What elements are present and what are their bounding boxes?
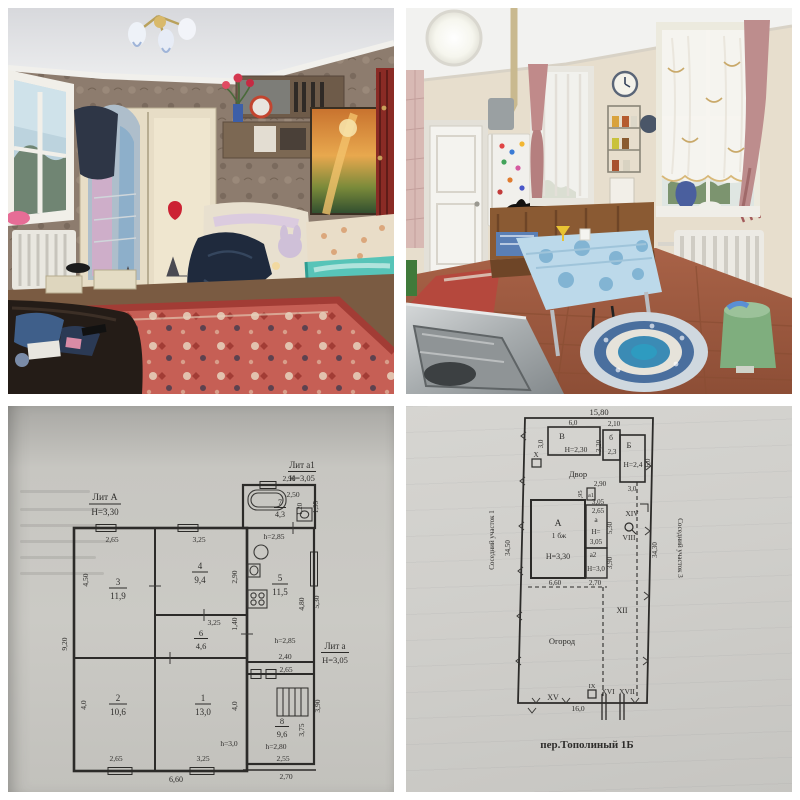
yard-label: Двор — [569, 469, 587, 479]
dim-b-depth: 6,0 — [644, 458, 652, 467]
dim-room6-right: 1,40 — [230, 617, 239, 630]
room-a-h1: Н= — [591, 528, 600, 536]
roman-xvii: XVII — [619, 687, 635, 696]
building-b-height: Н=2,4 — [623, 460, 642, 469]
nature-panel — [311, 108, 381, 214]
room5-number: 5 — [278, 573, 283, 583]
room-a2-label: а2 — [590, 551, 597, 559]
roman-ix: IX — [589, 683, 596, 690]
dim-left-total: 9,20 — [60, 637, 69, 650]
dim-room1-right: 4,0 — [230, 701, 239, 711]
room2-area: 10,6 — [110, 707, 126, 717]
dim-room8-bottom2: 2,70 — [279, 772, 292, 781]
blue-vase — [675, 181, 696, 206]
dim-room8-bottom1: 2,55 — [276, 754, 289, 763]
dim-room2-bottom: 2,65 — [109, 754, 122, 763]
roman-xvi: XVI — [601, 687, 615, 696]
dim-b-width: 3,0 — [628, 485, 637, 493]
bedroom-photo[interactable] — [8, 8, 394, 394]
dim-bottom-total: 6,60 — [169, 775, 183, 784]
calendar — [610, 178, 634, 206]
green-bottle — [406, 260, 417, 296]
room-a2-height: Н=3,0 — [587, 565, 605, 573]
lit-a-small-height: Н=3,05 — [322, 655, 348, 665]
building-b-label: Б — [627, 440, 632, 450]
wall-fan — [640, 115, 658, 133]
room2-number: 2 — [116, 693, 121, 703]
dim-room1-bottom: 3,25 — [196, 754, 209, 763]
site-plan[interactable]: 15,80 6,0 В Н=2,30 3,0 2,10 3,20 б 2,3 Б… — [406, 406, 792, 792]
stairs — [277, 688, 308, 716]
room6-area: 4,6 — [196, 641, 207, 651]
main-building-height: Н=3,30 — [546, 552, 570, 561]
dim-3-05a: 3,05 — [592, 498, 605, 506]
garden-label: Огород — [549, 636, 576, 646]
dim-bath-inner: 2,50 — [286, 490, 299, 499]
building-b2-label: б — [609, 433, 613, 442]
neighbor-parcel-1-label: Соседний участок 1 — [488, 510, 496, 570]
room4-area: 9,4 — [194, 575, 206, 585]
room7-number: 7 — [278, 498, 282, 507]
room1-number: 1 — [201, 693, 206, 703]
main-building-label: А — [555, 519, 562, 529]
room3-number: 3 — [116, 577, 121, 587]
trash-bin — [720, 302, 776, 373]
window — [8, 70, 74, 226]
main-building-note: 1 бж — [552, 531, 567, 540]
room8-area: 9,6 — [277, 729, 288, 739]
roman-xii: XII — [616, 606, 627, 615]
dim-left-length: 34,50 — [504, 540, 512, 556]
room3-area: 11,9 — [110, 591, 126, 601]
room1-area: 13,0 — [195, 707, 211, 717]
lit-a1-label: Лит а1 — [289, 460, 315, 470]
dim-bath-v1: 1,20 — [296, 502, 304, 515]
dim-2-65: 2,65 — [592, 507, 605, 515]
dim-room4-top: 3,25 — [192, 535, 205, 544]
red-curtain — [376, 68, 394, 226]
site-dashed-lines — [528, 482, 637, 699]
room5-area: 11,5 — [272, 587, 288, 597]
dim-pass-top: 2,40 — [278, 652, 291, 661]
dim-3-90: 3,90 — [606, 556, 614, 569]
ceiling-lamp — [427, 11, 481, 65]
dim-room8-right1: 3,90 — [313, 699, 322, 712]
meter-box — [488, 98, 514, 130]
dim-room3-left: 4,50 — [81, 573, 90, 586]
dim-room5-right2: 5,30 — [312, 595, 321, 608]
dim-pass-bottom: 2,65 — [279, 665, 292, 674]
room6-number: 6 — [199, 628, 203, 638]
lit-a-small-label: Лит а — [324, 641, 345, 651]
dim-v-width: 6,0 — [569, 419, 578, 427]
left-window — [528, 64, 594, 206]
room-a-h2: 3,05 — [590, 538, 603, 546]
dim-room4-right: 2,90 — [230, 570, 239, 583]
dim-room6-top: 3,25 — [207, 618, 220, 627]
dim-right-length: 34,30 — [651, 542, 659, 558]
room8-number: 8 — [280, 716, 284, 726]
house-plan-labels: Лит А Н=3,30 Лит а1 Н=3,05 Лит а Н=3,05 … — [60, 460, 349, 784]
white-bowl — [699, 201, 721, 210]
door — [424, 120, 488, 280]
building-v-height: Н=2,30 — [565, 445, 588, 454]
room4-number: 4 — [198, 561, 203, 571]
dim-1-95: 1,95 — [577, 490, 584, 501]
kitchen-photo[interactable] — [406, 8, 792, 394]
dim-2-10: 2,10 — [608, 420, 621, 428]
rag-rug — [580, 312, 708, 392]
dim-bath-top: 2,90 — [282, 474, 295, 483]
dim-room5-right1: 4,80 — [297, 597, 306, 610]
stove-icon — [248, 590, 267, 608]
dim-v-depth: 3,0 — [537, 439, 545, 448]
dim-bath-v2: 1,95 — [312, 500, 320, 513]
dim-room1-height: h=3,0 — [220, 739, 238, 748]
dim-room2-left: 4,0 — [79, 700, 88, 710]
roman-viii: VIII — [623, 533, 636, 542]
dim-total-top: 15,80 — [589, 407, 608, 417]
dim-5-30: 5,30 — [606, 521, 614, 534]
dim-2-90: 2,90 — [594, 480, 607, 488]
cup — [580, 229, 590, 240]
lit-a-height: Н=3,30 — [91, 507, 119, 517]
gate-marks — [602, 694, 624, 720]
table-with-clothes — [8, 300, 143, 394]
room7-area: 4,3 — [275, 510, 285, 519]
roman-xiv: XIV — [625, 509, 639, 518]
neighbor-parcel-3-label: Соседний участок 3 — [676, 518, 684, 578]
dim-6-60: 6,60 — [549, 579, 562, 587]
roman-xv: XV — [547, 693, 559, 702]
room-a-label: а — [594, 515, 598, 524]
kitchen-sink-icon — [248, 545, 268, 577]
lit-a-label: Лит А — [93, 493, 118, 503]
right-window — [656, 20, 770, 222]
dim-bottom-length: 16,0 — [571, 704, 584, 713]
address-label: пер.Тополиный 1Б — [540, 739, 633, 751]
dim-room3-top: 2,65 — [105, 535, 118, 544]
dim-room8-height: h=2,80 — [265, 742, 286, 751]
dim-room5-height: h=2,85 — [274, 636, 295, 645]
dim-room8-right2: 3,75 — [297, 723, 306, 736]
building-v-label: В — [559, 431, 565, 441]
dim-bath-height: h=2,85 — [263, 532, 284, 541]
building-b2-area: 2,3 — [608, 448, 617, 456]
dim-2-70: 2,70 — [589, 579, 602, 587]
dim-3-20: 3,20 — [595, 439, 603, 452]
tiled-wall — [406, 70, 424, 248]
house-floor-plan[interactable]: Лит А Н=3,30 Лит а1 Н=3,05 Лит а Н=3,05 … — [8, 406, 394, 792]
roman-x: X — [533, 451, 538, 459]
